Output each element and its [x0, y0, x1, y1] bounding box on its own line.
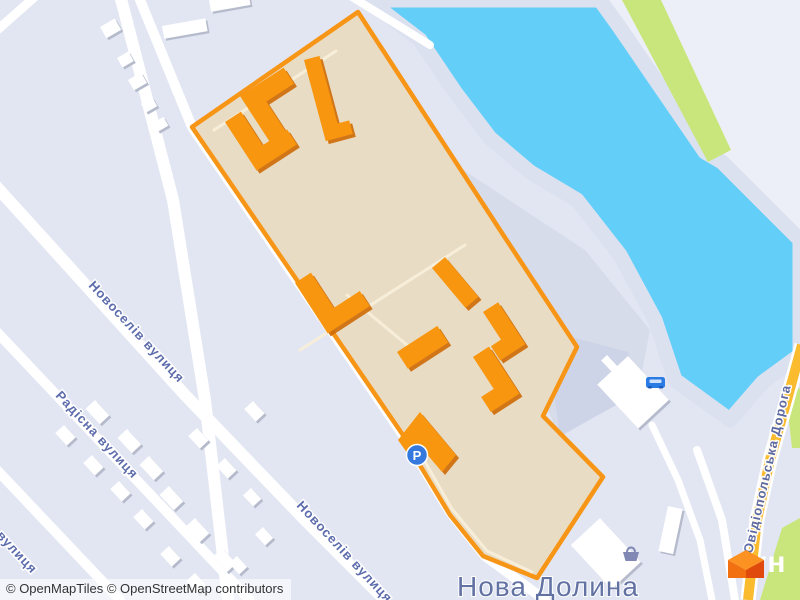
- svg-text:P: P: [413, 448, 422, 463]
- brand-logo[interactable]: лун: [726, 548, 800, 578]
- lun-cube-icon: [726, 548, 766, 578]
- map-tiles: Новоселів вулиця Новоселів вулиця Радісн…: [0, 0, 800, 600]
- place-label-nova-dolyna: Нова Долина: [457, 571, 639, 600]
- poi-parking[interactable]: P: [407, 445, 428, 466]
- map-attribution[interactable]: © OpenMapTiles © OpenStreetMap contribut…: [0, 579, 291, 600]
- map-canvas[interactable]: Новоселів вулиця Новоселів вулиця Радісн…: [0, 0, 800, 600]
- car-icon[interactable]: [646, 377, 665, 389]
